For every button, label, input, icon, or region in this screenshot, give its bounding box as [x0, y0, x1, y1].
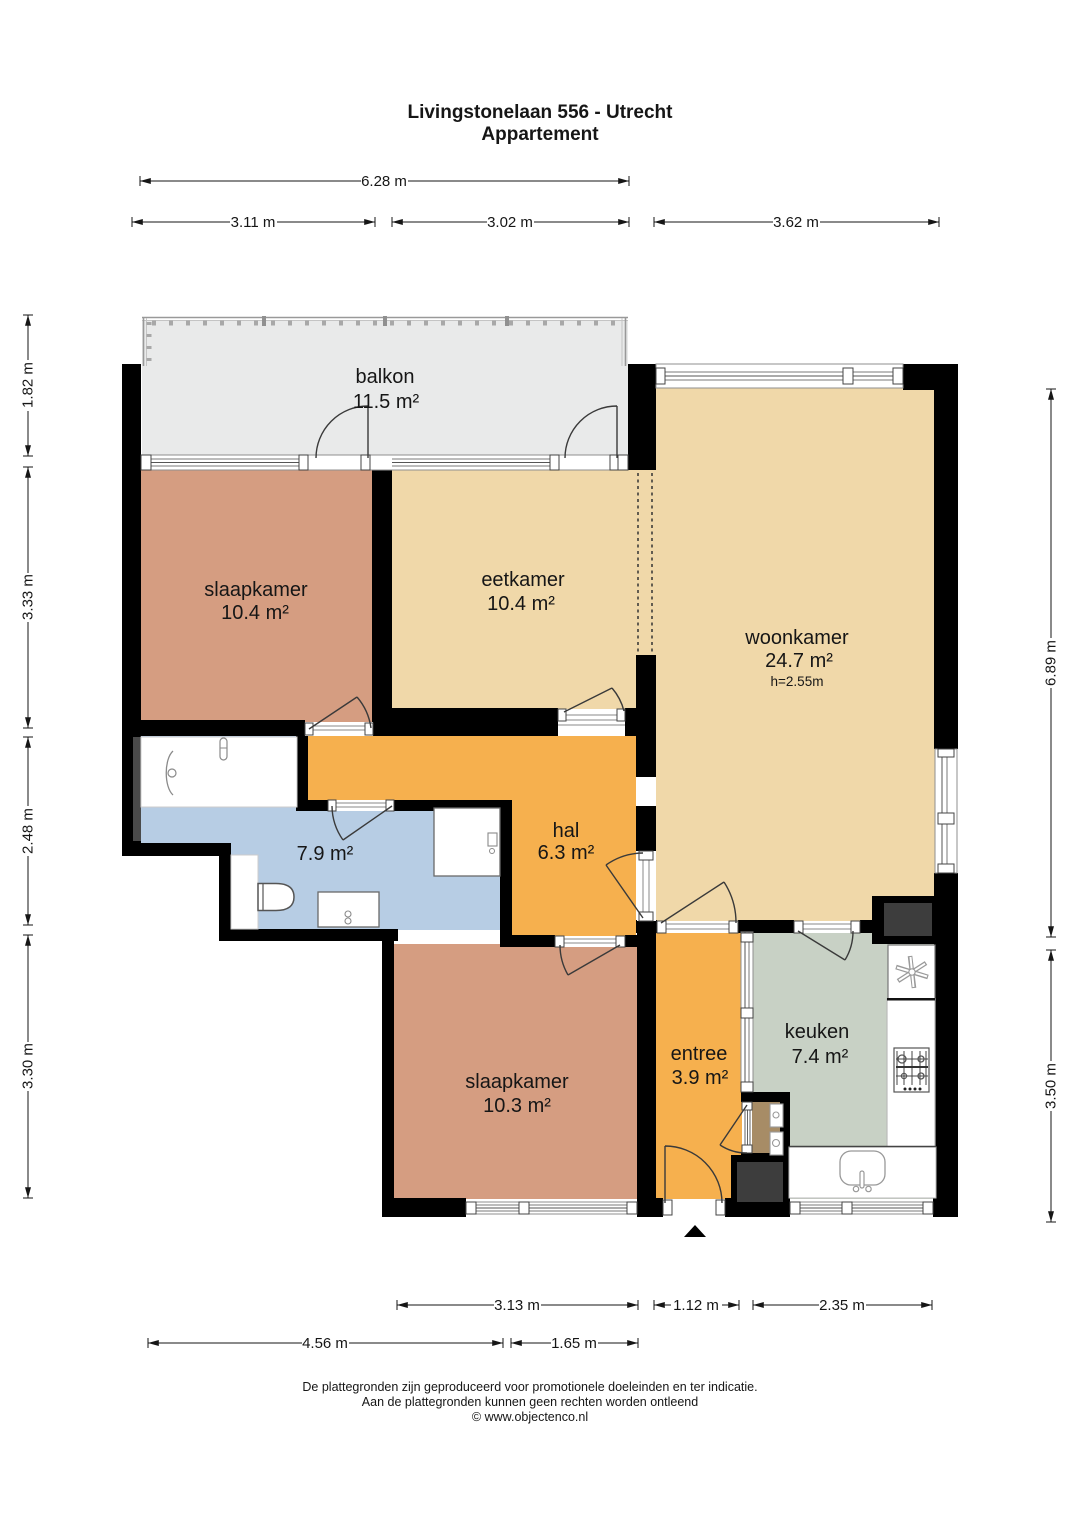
svg-text:10.4 m²: 10.4 m²: [487, 593, 555, 615]
svg-text:6.28 m: 6.28 m: [361, 173, 407, 190]
svg-text:3.30 m: 3.30 m: [20, 1043, 37, 1089]
svg-text:h=2.55m: h=2.55m: [771, 674, 824, 689]
svg-text:balkon: balkon: [356, 366, 415, 388]
svg-text:1.65 m: 1.65 m: [551, 1335, 597, 1352]
svg-text:slaapkamer: slaapkamer: [465, 1071, 569, 1093]
svg-text:3.33 m: 3.33 m: [20, 574, 37, 620]
svg-text:2.35 m: 2.35 m: [819, 1297, 865, 1314]
svg-text:1.82 m: 1.82 m: [20, 362, 37, 408]
svg-text:3.9 m²: 3.9 m²: [672, 1067, 729, 1089]
svg-text:3.02 m: 3.02 m: [487, 214, 533, 231]
svg-text:7.9 m²: 7.9 m²: [297, 843, 354, 865]
svg-text:11.5 m²: 11.5 m²: [353, 391, 420, 413]
svg-text:© www.objectenco.nl: © www.objectenco.nl: [472, 1410, 588, 1424]
svg-text:woonkamer: woonkamer: [744, 627, 849, 649]
svg-text:slaapkamer: slaapkamer: [204, 579, 308, 601]
svg-text:3.13 m: 3.13 m: [494, 1297, 540, 1314]
svg-text:Livingstonelaan 556 - Utrecht: Livingstonelaan 556 - Utrecht: [407, 102, 673, 123]
svg-text:10.3 m²: 10.3 m²: [483, 1095, 551, 1117]
svg-text:24.7 m²: 24.7 m²: [765, 650, 833, 672]
svg-text:3.62 m: 3.62 m: [773, 214, 819, 231]
svg-text:2.48 m: 2.48 m: [20, 808, 37, 854]
svg-text:Appartement: Appartement: [481, 124, 599, 145]
svg-text:hal: hal: [553, 820, 580, 842]
svg-text:3.50 m: 3.50 m: [1043, 1063, 1060, 1109]
svg-text:Aan de plattegronden kunnen ge: Aan de plattegronden kunnen geen rechten…: [362, 1395, 698, 1409]
svg-text:7.4 m²: 7.4 m²: [792, 1046, 849, 1068]
svg-text:eetkamer: eetkamer: [481, 569, 565, 591]
svg-text:6.3 m²: 6.3 m²: [538, 842, 595, 864]
svg-text:keuken: keuken: [785, 1021, 850, 1043]
svg-text:10.4 m²: 10.4 m²: [221, 602, 289, 624]
svg-text:3.11 m: 3.11 m: [231, 214, 276, 231]
svg-text:entree: entree: [671, 1043, 728, 1065]
svg-text:1.12 m: 1.12 m: [673, 1297, 719, 1314]
svg-text:6.89 m: 6.89 m: [1043, 640, 1060, 686]
svg-text:De plattegronden zijn geproduc: De plattegronden zijn geproduceerd voor …: [302, 1380, 757, 1394]
svg-text:4.56 m: 4.56 m: [302, 1335, 348, 1352]
